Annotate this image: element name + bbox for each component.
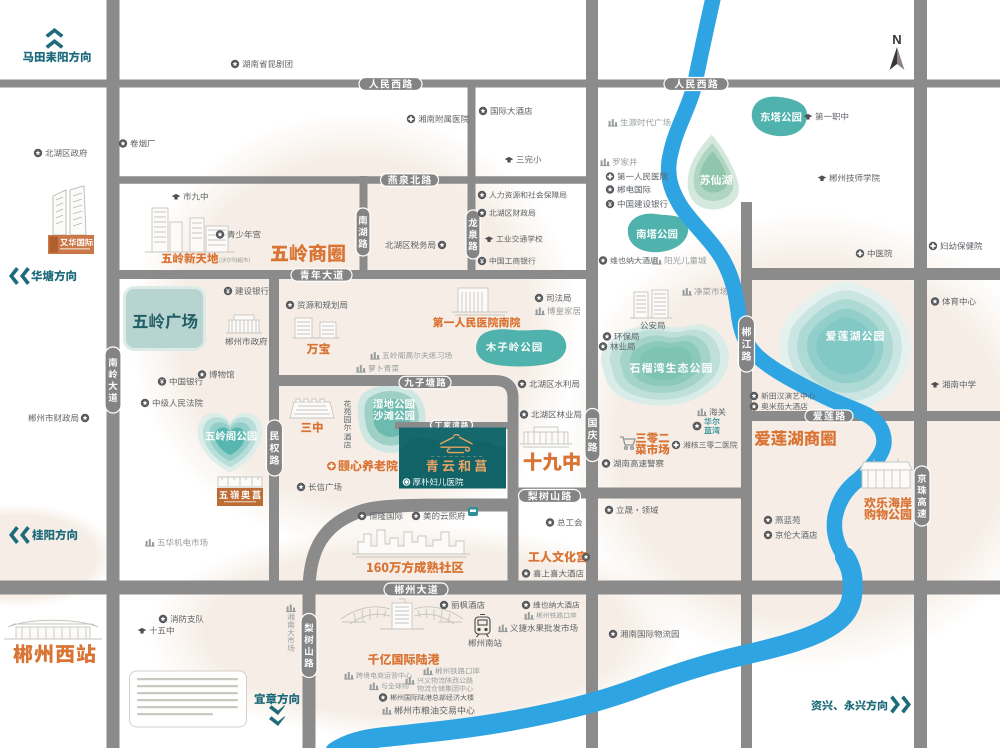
svg-text:N: N [892,32,901,47]
